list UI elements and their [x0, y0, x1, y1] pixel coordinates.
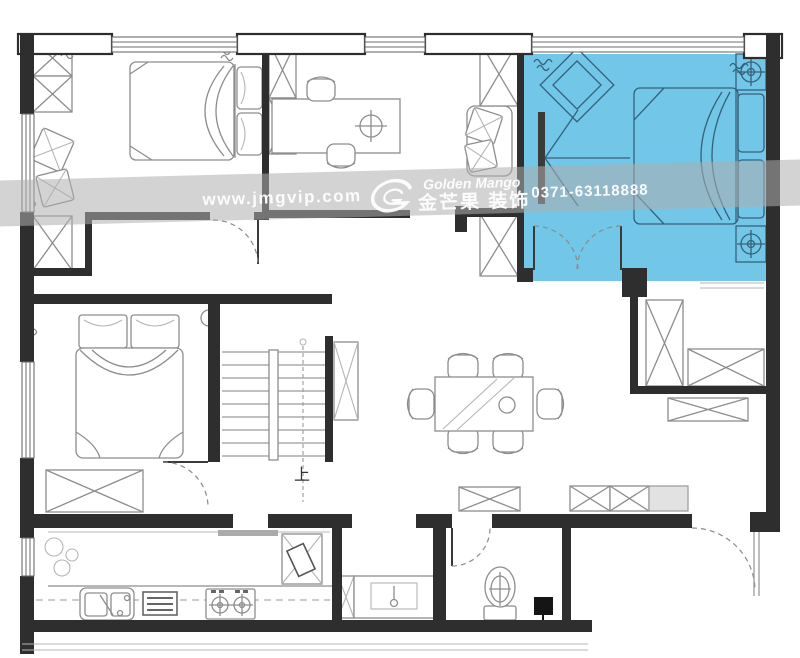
window-left-3	[22, 538, 34, 576]
outer-boundary-line	[22, 644, 588, 650]
lounge-chair-icon	[464, 106, 512, 176]
watermark-brand-en: Golden Mango	[423, 174, 521, 193]
window-top-3	[532, 37, 744, 52]
kitchen	[36, 530, 332, 620]
study-room	[269, 42, 518, 277]
door-entry	[692, 528, 759, 596]
floor-plan: 上	[0, 0, 800, 658]
door-bedroom-top-left	[213, 220, 258, 265]
washbasin-icon	[354, 576, 434, 618]
door-bathroom	[452, 528, 490, 566]
bedroom-top-left	[25, 40, 263, 270]
window-top-2	[365, 37, 425, 52]
toilet-icon	[484, 567, 516, 620]
appliance-icon	[143, 592, 177, 615]
watermark-brand-cn: 金芒果 装饰	[417, 189, 531, 215]
window-top-1	[112, 37, 237, 52]
stairs-up-label: 上	[294, 466, 310, 484]
dining-table-icon	[435, 377, 533, 431]
gas-stove-icon	[206, 589, 255, 619]
double-bed-icon	[76, 315, 183, 458]
door-bedroom-bottom-left	[163, 462, 208, 507]
sliding-door-panel	[218, 530, 278, 536]
bowls-icon	[45, 538, 78, 576]
wardrobe-icon	[46, 470, 143, 512]
stair-railing	[269, 350, 278, 460]
floor-plan-canvas: 上	[0, 0, 800, 658]
entry-closet	[646, 283, 764, 421]
double-bed-icon	[130, 62, 262, 160]
kitchen-sink-icon	[80, 588, 134, 620]
window-left-2	[22, 362, 34, 458]
watermark-phone: 0371-63118888	[531, 181, 649, 201]
bedroom-bottom-left	[26, 310, 218, 512]
stairs: 上	[222, 339, 358, 502]
wall-column	[425, 34, 532, 54]
wall-column	[237, 34, 365, 54]
kitchen-cabinet-icon	[282, 534, 322, 584]
hall-sideboard-icon	[459, 486, 688, 511]
